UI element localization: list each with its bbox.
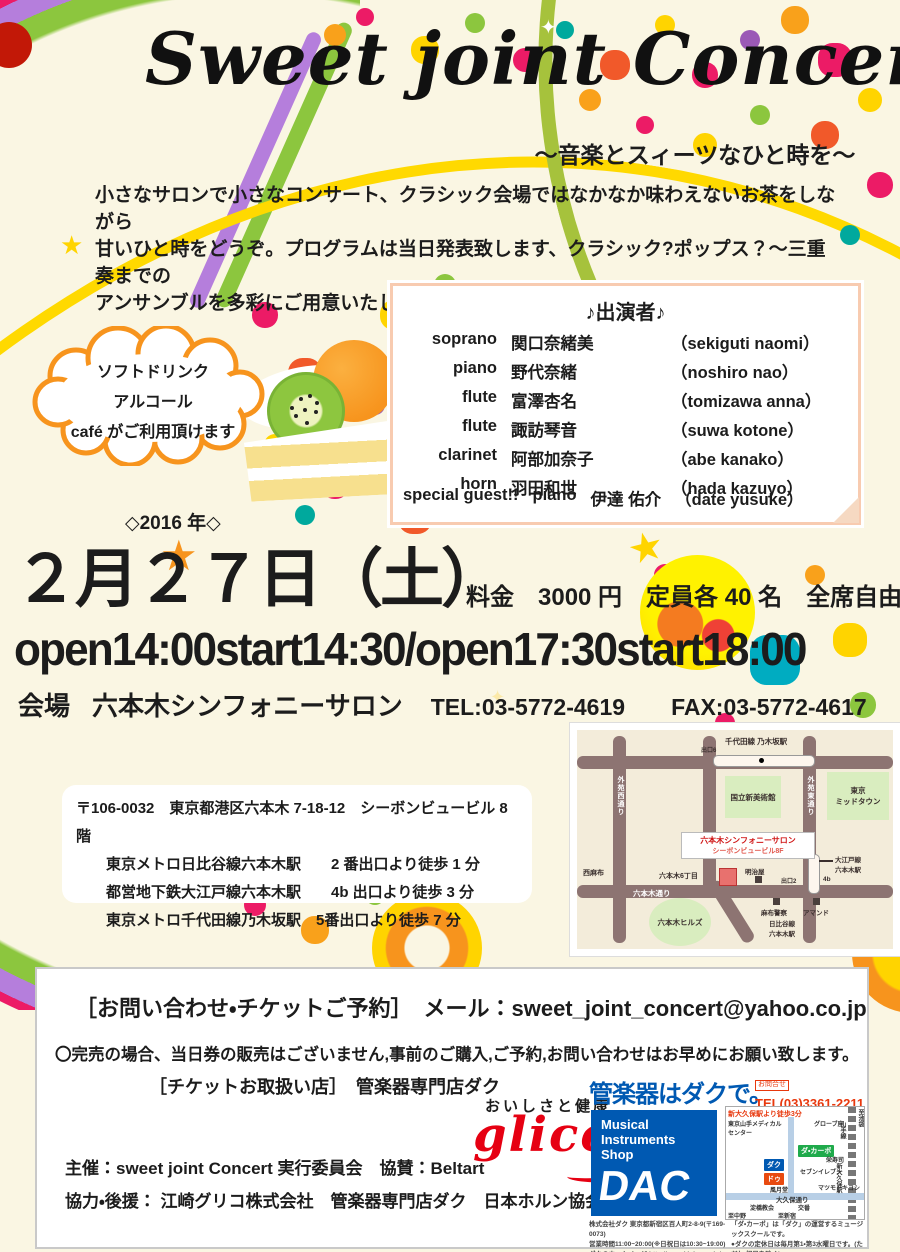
- map-label: 六本木通り: [633, 888, 671, 899]
- map-label: 麻布警察: [761, 907, 787, 917]
- dac-map-label: 風月堂: [770, 1185, 788, 1194]
- performer-role: soprano: [393, 330, 511, 354]
- map-poi: [755, 876, 762, 883]
- performer-romaji: （sekiguti naomi）: [671, 330, 858, 354]
- performer-role: flute: [393, 417, 511, 441]
- contact-panel: ［お問い合わせ・チケットご予約］ メール：sweet_joint_concert…: [35, 967, 869, 1249]
- special-guest-role: piano: [533, 486, 577, 510]
- performer-name: 富澤杏名: [511, 388, 671, 412]
- map-label: 外苑西通り: [615, 776, 625, 816]
- dac-ad: 管楽器はダクで。 お問合せ TEL(03)3361-2211 FAX(03)33…: [589, 1074, 867, 1242]
- map-venue-tag: 六本木シンフォニーサロン シーボンビュービル8F: [681, 832, 815, 859]
- access-line: 東京メトロ日比谷線六本木駅 2 番出口より徒歩 1 分: [76, 851, 518, 879]
- venue-map: 千代田線 乃木坂駅 出口6 外苑西通り 外苑東通り 国立新美術館 東京 ミッドタ…: [570, 723, 900, 956]
- map-label: 日比谷線 六本木駅: [769, 918, 795, 938]
- dac-map-label: 山手線: [838, 1121, 847, 1139]
- bubble-line: café がご利用頂けます: [28, 418, 278, 442]
- venue-label: 会場: [18, 686, 70, 723]
- map-label: 六本木6丁目: [659, 871, 698, 881]
- performers-heading: ♪出演者♪: [393, 296, 858, 325]
- special-guest-romaji: （date yusuke）: [675, 486, 803, 510]
- dac-footer-left: 株式会社ダク 東京都新宿区百人町2-8-9(〒169-0073) 営業時間11:…: [589, 1220, 727, 1252]
- access-box: 〒106-0032 東京都港区六本木 7-18-12 シーボンビュービル 8 階…: [62, 785, 532, 903]
- intro-line: 小さなサロンで小さなコンサート、クラシック会場ではなかなか味わえないお茶をしなが…: [95, 182, 840, 236]
- performer-role: flute: [393, 388, 511, 412]
- star-decoration: ★: [60, 232, 83, 258]
- dac-banner: 管楽器はダクで。: [589, 1074, 772, 1109]
- confetti-dots: [0, 0, 10, 10]
- dac-map-label: 至新宿: [778, 1211, 796, 1220]
- performer-name: 関口奈緒美: [511, 330, 671, 354]
- special-guest-name: 伊達 佑介: [591, 486, 662, 510]
- dac-map-label: ドゥ: [764, 1173, 784, 1185]
- subtitle: ～音楽とスィーツなひと時を～: [500, 136, 890, 170]
- dac-map-label: 新大久保駅: [834, 1163, 843, 1193]
- dac-map-title: 新大久保駅より徒歩3分: [728, 1109, 802, 1119]
- event-times: open14:00start14:30/open17:30start18:00: [14, 622, 806, 676]
- venue-line: 会場 六本木シンフォニーサロン TEL:03-5772-4619 FAX:03-…: [18, 686, 867, 723]
- map-pointer-line: [819, 860, 833, 862]
- dac-mini-map: 新大久保駅より徒歩3分 東京山手メディカル センター グローブ座 ダ・カーポ 栄…: [725, 1106, 865, 1220]
- performer-name: 諏訪琴音: [511, 417, 671, 441]
- venue-tel: TEL:03-5772-4619: [431, 694, 625, 721]
- star-decoration: ★: [624, 524, 668, 571]
- map-label: 西麻布: [583, 868, 604, 878]
- contact-heading: ［お問い合わせ・チケットご予約］ メール：sweet_joint_concert…: [75, 991, 867, 1023]
- map-label: アマンド: [803, 907, 829, 917]
- performer-romaji: （noshiro nao）: [671, 359, 858, 383]
- intro-line: 甘いひと時をどうぞ。プログラムは当日発表致します、クラシック?ポップス？～三重奏…: [95, 236, 840, 290]
- map-station-dot: [759, 758, 764, 763]
- support-line: 協力・後援： 江崎グリコ株式会社 管楽器専門店ダク 日本ホルン協会: [65, 1187, 602, 1212]
- event-date: ２月２７日（土）: [14, 528, 502, 620]
- access-line: 都営地下鉄大江戸線六本木駅 4b 出口より徒歩 3 分: [76, 879, 518, 907]
- performer-romaji: （abe kanako）: [671, 446, 858, 470]
- dac-footer-right: 「ダ・カーポ」は「ダク」の運営するミュージックスクールです。 ●ダクの定休日は毎…: [731, 1220, 867, 1252]
- contact-note: 〇完売の場合、当日券の販売はございません,事前のご購入,ご予約,お問い合わせはお…: [55, 1041, 859, 1065]
- map-label: 大江戸線 六本木駅: [835, 854, 861, 874]
- performer-role: clarinet: [393, 446, 511, 470]
- performer-name: 野代奈緒: [511, 359, 671, 383]
- map-road: [613, 736, 626, 943]
- dac-map-road: [788, 1117, 794, 1197]
- dac-map-rail: [848, 1107, 856, 1219]
- performer-name: 阿部加奈子: [511, 446, 671, 470]
- dac-map-label: 至中野: [728, 1211, 746, 1220]
- dac-map-label: ダク: [764, 1159, 784, 1171]
- map-label: 明治屋: [745, 866, 765, 876]
- dac-map-label: 東京山手メディカル センター: [728, 1119, 782, 1137]
- venue-fax: FAX:03-5772-4617: [671, 694, 867, 721]
- drinks-bubble: ソフトドリンク アルコール café がご利用頂けます: [28, 326, 278, 466]
- dac-map-label: 淀橋教会: [750, 1203, 774, 1212]
- page-curl-decoration: [833, 497, 859, 523]
- page-title: Sweet joint Concert: [145, 16, 805, 101]
- access-line: 〒106-0032 東京都港区六本木 7-18-12 シーボンビュービル 8 階: [76, 795, 518, 851]
- map-label: 出口6: [701, 745, 716, 754]
- map-poi: [773, 898, 780, 905]
- bubble-line: ソフトドリンク: [28, 358, 278, 382]
- map-station-bar: [713, 755, 815, 767]
- map-venue-marker: [719, 868, 737, 886]
- venue-name: 六本木シンフォニーサロン: [92, 686, 403, 723]
- map-label: 外苑東通り: [805, 776, 815, 816]
- map-building: 国立新美術館: [725, 776, 781, 818]
- map-label: 千代田線 乃木坂駅: [725, 736, 787, 747]
- dac-map-label: 交番: [798, 1203, 810, 1212]
- map-poi: [813, 898, 820, 905]
- performers-box: ♪出演者♪ soprano関口奈緒美（sekiguti naomi） piano…: [390, 283, 861, 525]
- performer-romaji: （tomizawa anna）: [671, 388, 858, 412]
- concert-flyer: ★ ★ ★ ★ ✦ ✦ ✦ Sweet joint Concert ～音楽とスィ…: [0, 0, 900, 1252]
- special-guest-label: special guest!!: [403, 486, 519, 510]
- map-building: 六本木ヒルズ: [649, 898, 711, 946]
- access-line: 東京メトロ千代田線乃木坂駅 5番出口より徒歩 7 分: [76, 907, 518, 935]
- ticket-shops-line: ［チケットお取扱い店］ 管楽器専門店ダク: [149, 1073, 500, 1099]
- dac-shop-text: Musical Instruments Shop: [601, 1118, 675, 1163]
- dac-contact-label: お問合せ: [755, 1080, 789, 1091]
- performer-romaji: （suwa kotone）: [671, 417, 858, 441]
- event-fee: 料金 3000 円 定員各 40 名 全席自由: [466, 577, 900, 612]
- map-label: 出口2: [781, 876, 796, 885]
- map-building: 東京 ミッドタウン: [827, 772, 889, 820]
- map-label: 4b: [823, 876, 831, 883]
- dac-logo: DAC: [596, 1162, 694, 1210]
- bubble-line: アルコール: [28, 388, 278, 412]
- dac-logo-box: Musical Instruments Shop DAC: [591, 1110, 717, 1216]
- organizer-line: 主催：sweet joint Concert 実行委員会 協賛：Beltart: [65, 1154, 484, 1179]
- performer-role: piano: [393, 359, 511, 383]
- dac-map-label: 至池袋: [856, 1109, 865, 1127]
